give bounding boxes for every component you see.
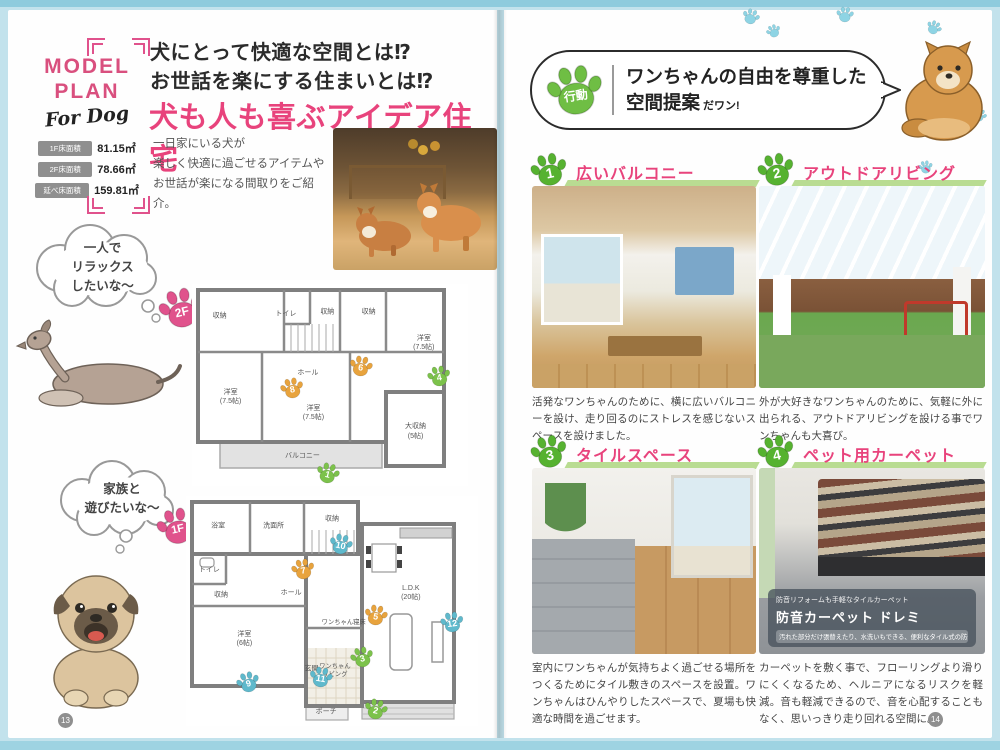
photo-plant bbox=[545, 483, 585, 546]
left-page: MODEL PLAN For Dog 1F床面積 81.15㎡ 2F床面積 78… bbox=[8, 10, 497, 738]
photo-tile-floor bbox=[532, 539, 635, 654]
section-title: タイルスペース bbox=[576, 442, 693, 466]
deco-paw-icon bbox=[923, 17, 944, 38]
floor-plan-1f: 浴室 洗面所 収納 トイレ 収納 洋室 (6帖) ホール 玄関 ポーチ ワンちゃ… bbox=[186, 496, 478, 726]
corner-bracket-icon bbox=[132, 38, 150, 56]
room-label: 収納 bbox=[320, 308, 334, 317]
room-label: L.D.K (20帖) bbox=[401, 584, 420, 602]
corner-bracket-icon bbox=[87, 38, 105, 56]
area-label: 1F床面積 bbox=[38, 141, 92, 156]
corgi-photo bbox=[333, 128, 497, 270]
area-row: 2F床面積 78.66㎡ bbox=[38, 161, 136, 177]
deco-paw-icon bbox=[740, 6, 762, 28]
photo-low-table bbox=[608, 336, 702, 356]
room-label: 洋室 (7.5帖) bbox=[303, 404, 324, 422]
photo-glass-door bbox=[671, 475, 753, 578]
area-value: 78.66㎡ bbox=[97, 161, 136, 177]
area-label: 2F床面積 bbox=[38, 162, 92, 177]
section-4-header: 4 ペット用カーペット bbox=[759, 438, 983, 472]
paw-number: 10 bbox=[335, 540, 347, 551]
product-overlay: 防音リフォームも手軽なタイルカーペット 防音カーペット ドレミ 汚れた部分だけ張… bbox=[768, 589, 976, 647]
section-3-header: 3 タイルスペース bbox=[532, 438, 756, 472]
room-label: 収納 bbox=[213, 312, 227, 321]
section-3-desc: 室内にワンちゃんが気持ちよく過ごせる場所をつくるためにタイル敷きのスペースを設置… bbox=[532, 660, 756, 728]
room-label: 洋室 (7.5帖) bbox=[413, 333, 434, 351]
area-label: 延べ床面積 bbox=[35, 183, 89, 198]
overlay-small-text: 防音リフォームも手軽なタイルカーペット bbox=[776, 595, 968, 605]
tile-space-photo bbox=[532, 468, 756, 654]
model-plan-title: MODEL PLAN bbox=[24, 54, 150, 104]
section-title: 広いバルコニー bbox=[576, 160, 695, 184]
area-row: 1F床面積 81.15㎡ bbox=[38, 140, 136, 156]
floor-label: 2F bbox=[174, 305, 191, 320]
area-value: 81.15㎡ bbox=[97, 140, 136, 156]
thought-text: 一人で リラックス したいな〜 bbox=[35, 239, 171, 295]
room-label: トイレ bbox=[275, 310, 296, 319]
outdoor-living-photo bbox=[759, 186, 985, 388]
intro-text: 一日家にいる犬が 楽しく快適に過ごせるアイテムや お世話が楽になる間取りをご紹介… bbox=[153, 134, 335, 215]
divider bbox=[612, 65, 614, 115]
deco-paw-icon bbox=[835, 5, 854, 24]
model-plan-subtitle: For Dog bbox=[23, 101, 150, 134]
bubble-title: ワンちゃんの自由を尊重した 空間提案 bbox=[626, 66, 867, 113]
corgi-silhouettes bbox=[333, 128, 497, 270]
page-number-left: 13 bbox=[58, 713, 73, 728]
deco-paw-icon bbox=[764, 22, 783, 41]
photo-accent-wall bbox=[675, 247, 733, 295]
section-title: ペット用カーペット bbox=[803, 442, 956, 466]
photo-glass-roof bbox=[759, 186, 985, 279]
section-title: アウトドアリビング bbox=[803, 160, 956, 184]
plan-paw-marker: 10 bbox=[327, 531, 355, 558]
photo-grass bbox=[759, 335, 985, 388]
right-page: 行動 ワンちゃんの自由を尊重した 空間提案だワン! bbox=[504, 10, 992, 738]
room-label: 大収納 (5帖) bbox=[405, 422, 426, 440]
floor-area-table: 1F床面積 81.15㎡ 2F床面積 78.66㎡ 延べ床面積 159.81㎡ bbox=[24, 140, 150, 198]
plan-paw-marker: 7 bbox=[289, 556, 316, 582]
section-1-header: 1 広いバルコニー bbox=[532, 156, 756, 190]
room-label: ポーチ bbox=[316, 708, 337, 717]
overlay-caption: 汚れた部分だけ張替えたり、水洗いもできる、便利なタイル式の防音カーペット。 bbox=[776, 630, 968, 643]
room-label: 収納 bbox=[214, 590, 228, 599]
plan-paw-marker: 12 bbox=[439, 609, 466, 634]
corner-bracket-icon bbox=[132, 196, 150, 214]
room-label: 浴室 bbox=[211, 521, 225, 530]
header-speech-bubble: 行動 ワンちゃんの自由を尊重した 空間提案だワン! bbox=[530, 50, 886, 130]
floor-plan-2f: 収納 トイレ 収納 収納 洋室 (7.5帖) ホール 洋室 (7.5帖) 洋室 … bbox=[192, 284, 468, 486]
room-label: 収納 bbox=[362, 308, 376, 317]
photo-window bbox=[541, 234, 623, 325]
section-2-header: 2 アウトドアリビング bbox=[759, 156, 983, 190]
photo-bed-base bbox=[818, 557, 985, 576]
action-paw-badge: 行動 bbox=[543, 59, 608, 121]
room-label: ワンちゃん寝床 bbox=[322, 618, 366, 626]
room-label: 洗面所 bbox=[263, 521, 284, 530]
corner-bracket-icon bbox=[87, 196, 105, 214]
photo-striped-bed bbox=[818, 479, 985, 561]
plan-paw-marker: 11 bbox=[307, 664, 334, 690]
model-plan-box: MODEL PLAN For Dog 1F床面積 81.15㎡ 2F床面積 78… bbox=[24, 38, 150, 214]
magazine-spread: MODEL PLAN For Dog 1F床面積 81.15㎡ 2F床面積 78… bbox=[0, 0, 1000, 750]
page-gutter-shadow bbox=[493, 10, 507, 738]
headline-sub2: お世話を楽にする住まいとは⁉ bbox=[150, 65, 434, 94]
photo-wood-floor bbox=[532, 364, 756, 388]
pug-illustration bbox=[26, 552, 166, 710]
action-badge-label: 行動 bbox=[563, 89, 588, 104]
plan-paw-marker: 6 bbox=[348, 353, 375, 379]
room-label: ホール bbox=[281, 588, 302, 597]
balcony-photo bbox=[532, 186, 756, 388]
pomeranian-illustration bbox=[896, 36, 992, 142]
plan-paw-marker: 4 bbox=[425, 363, 452, 389]
bubble-text: ワンちゃんの自由を尊重した 空間提案だワン! bbox=[626, 64, 867, 116]
pet-carpet-photo: 防音リフォームも手軽なタイルカーペット 防音カーペット ドレミ 汚れた部分だけ張… bbox=[759, 468, 985, 654]
bubble-suffix: だワン! bbox=[703, 100, 740, 112]
paw-number: 4 bbox=[436, 373, 443, 383]
plan-paw-marker: 5 bbox=[362, 602, 389, 628]
photo-curtain bbox=[759, 468, 775, 598]
bottom-edge-strip bbox=[0, 741, 1000, 750]
section-4-desc: カーペットを敷く事で、フローリングより滑りにくくなるため、ヘルニアになるリスクを… bbox=[759, 660, 983, 728]
room-label: バルコニー bbox=[285, 451, 320, 460]
page-number-right: 14 bbox=[928, 712, 943, 727]
overlay-product-name: 防音カーペット ドレミ bbox=[776, 607, 968, 626]
paw-number: 11 bbox=[315, 674, 326, 685]
room-label: 洋室 (7.5帖) bbox=[220, 388, 241, 406]
room-label: 収納 bbox=[325, 514, 339, 523]
room-label: トイレ bbox=[199, 565, 220, 574]
room-label: 洋室 (6帖) bbox=[237, 630, 253, 648]
paw-number: 12 bbox=[447, 619, 458, 629]
headline-sub1: 犬にとって快適な空間とは⁉ bbox=[150, 36, 411, 65]
